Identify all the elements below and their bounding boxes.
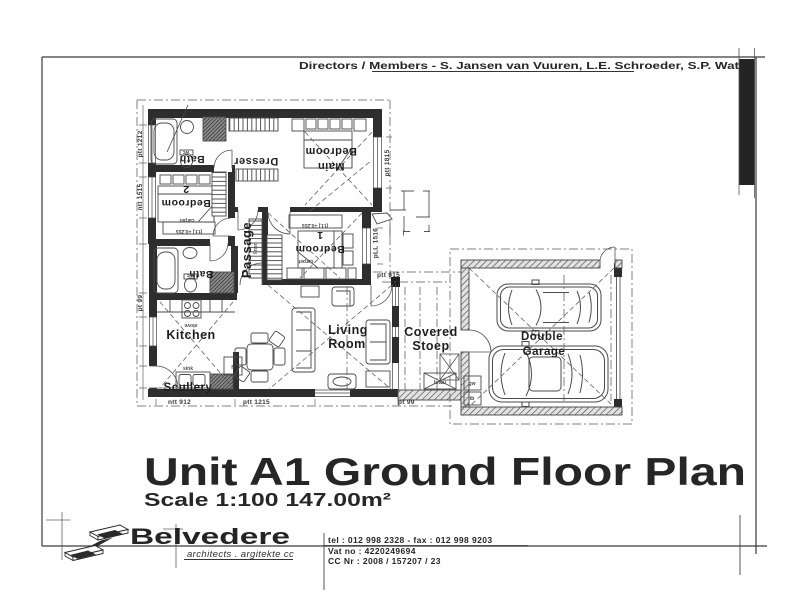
svg-text:Directors / Members - S. Janse: Directors / Members - S. Jansen van Vuur… [299, 61, 740, 72]
svg-text:ptt 1212: ptt 1212 [137, 130, 144, 157]
svg-text:(f.f.) +0.255: (f.f.) +0.255 [302, 222, 328, 228]
svg-text:gw: gw [469, 381, 476, 387]
svg-text:linen: linen [253, 242, 259, 254]
svg-text:Vat no : 4220249694: Vat no : 4220249694 [328, 546, 416, 556]
svg-text:2: 2 [183, 183, 189, 195]
svg-text:wc: wc [182, 149, 190, 155]
svg-text:braai: braai [434, 380, 447, 386]
svg-text:Room: Room [328, 337, 365, 351]
svg-text:Passage: Passage [239, 222, 254, 278]
svg-text:Dresser: Dresser [234, 155, 279, 167]
svg-text:Main: Main [317, 160, 344, 172]
svg-text:pt 99: pt 99 [398, 399, 415, 406]
svg-text:Scullery: Scullery [164, 382, 213, 394]
svg-text:tb: tb [470, 396, 475, 402]
svg-text:Scale 1:100 147.00m²: Scale 1:100 147.00m² [144, 489, 391, 510]
svg-text:Bedroom: Bedroom [305, 145, 357, 157]
svg-text:ptt 1815: ptt 1815 [384, 149, 391, 176]
svg-text:ntt 1515: ntt 1515 [137, 183, 144, 210]
svg-text:ptt 915: ptt 915 [377, 272, 400, 279]
svg-text:carpet: carpet [298, 258, 313, 264]
svg-text:sink: sink [183, 366, 193, 372]
svg-text:Double: Double [521, 331, 563, 343]
svg-text:Bedroom: Bedroom [161, 197, 211, 209]
svg-text:wc: wc [186, 272, 194, 278]
svg-text:Belvedere: Belvedere [130, 524, 290, 549]
svg-text:ptt 1215: ptt 1215 [243, 399, 270, 406]
svg-text:ntt 912: ntt 912 [168, 399, 191, 406]
svg-text:tel : 012 998 2328 - fax : 012: tel : 012 998 2328 - fax : 012 998 9203 [328, 535, 492, 545]
svg-text:carpet: carpet [179, 217, 194, 223]
svg-text:fr: fr [231, 365, 235, 371]
svg-text:Unit A1 Ground Floor Plan: Unit A1 Ground Floor Plan [144, 451, 746, 494]
svg-text:Bedroom: Bedroom [295, 243, 345, 255]
svg-text:(f.f.) +0.255: (f.f.) +0.255 [176, 228, 202, 234]
svg-text:architects . argitekte cc: architects . argitekte cc [187, 549, 294, 560]
svg-text:Living: Living [328, 323, 368, 337]
svg-text:Covered: Covered [404, 325, 458, 339]
svg-text:pLL 1516: pLL 1516 [373, 228, 380, 259]
svg-text:1: 1 [317, 229, 323, 241]
svg-text:pt 99: pt 99 [137, 295, 144, 312]
svg-text:Kitchen: Kitchen [166, 328, 215, 342]
svg-text:stove: stove [184, 322, 197, 328]
svg-text:Garage: Garage [523, 346, 566, 358]
svg-text:Stoep: Stoep [412, 339, 449, 353]
svg-text:CC Nr : 2008 / 157207 / 23: CC Nr : 2008 / 157207 / 23 [328, 556, 441, 566]
